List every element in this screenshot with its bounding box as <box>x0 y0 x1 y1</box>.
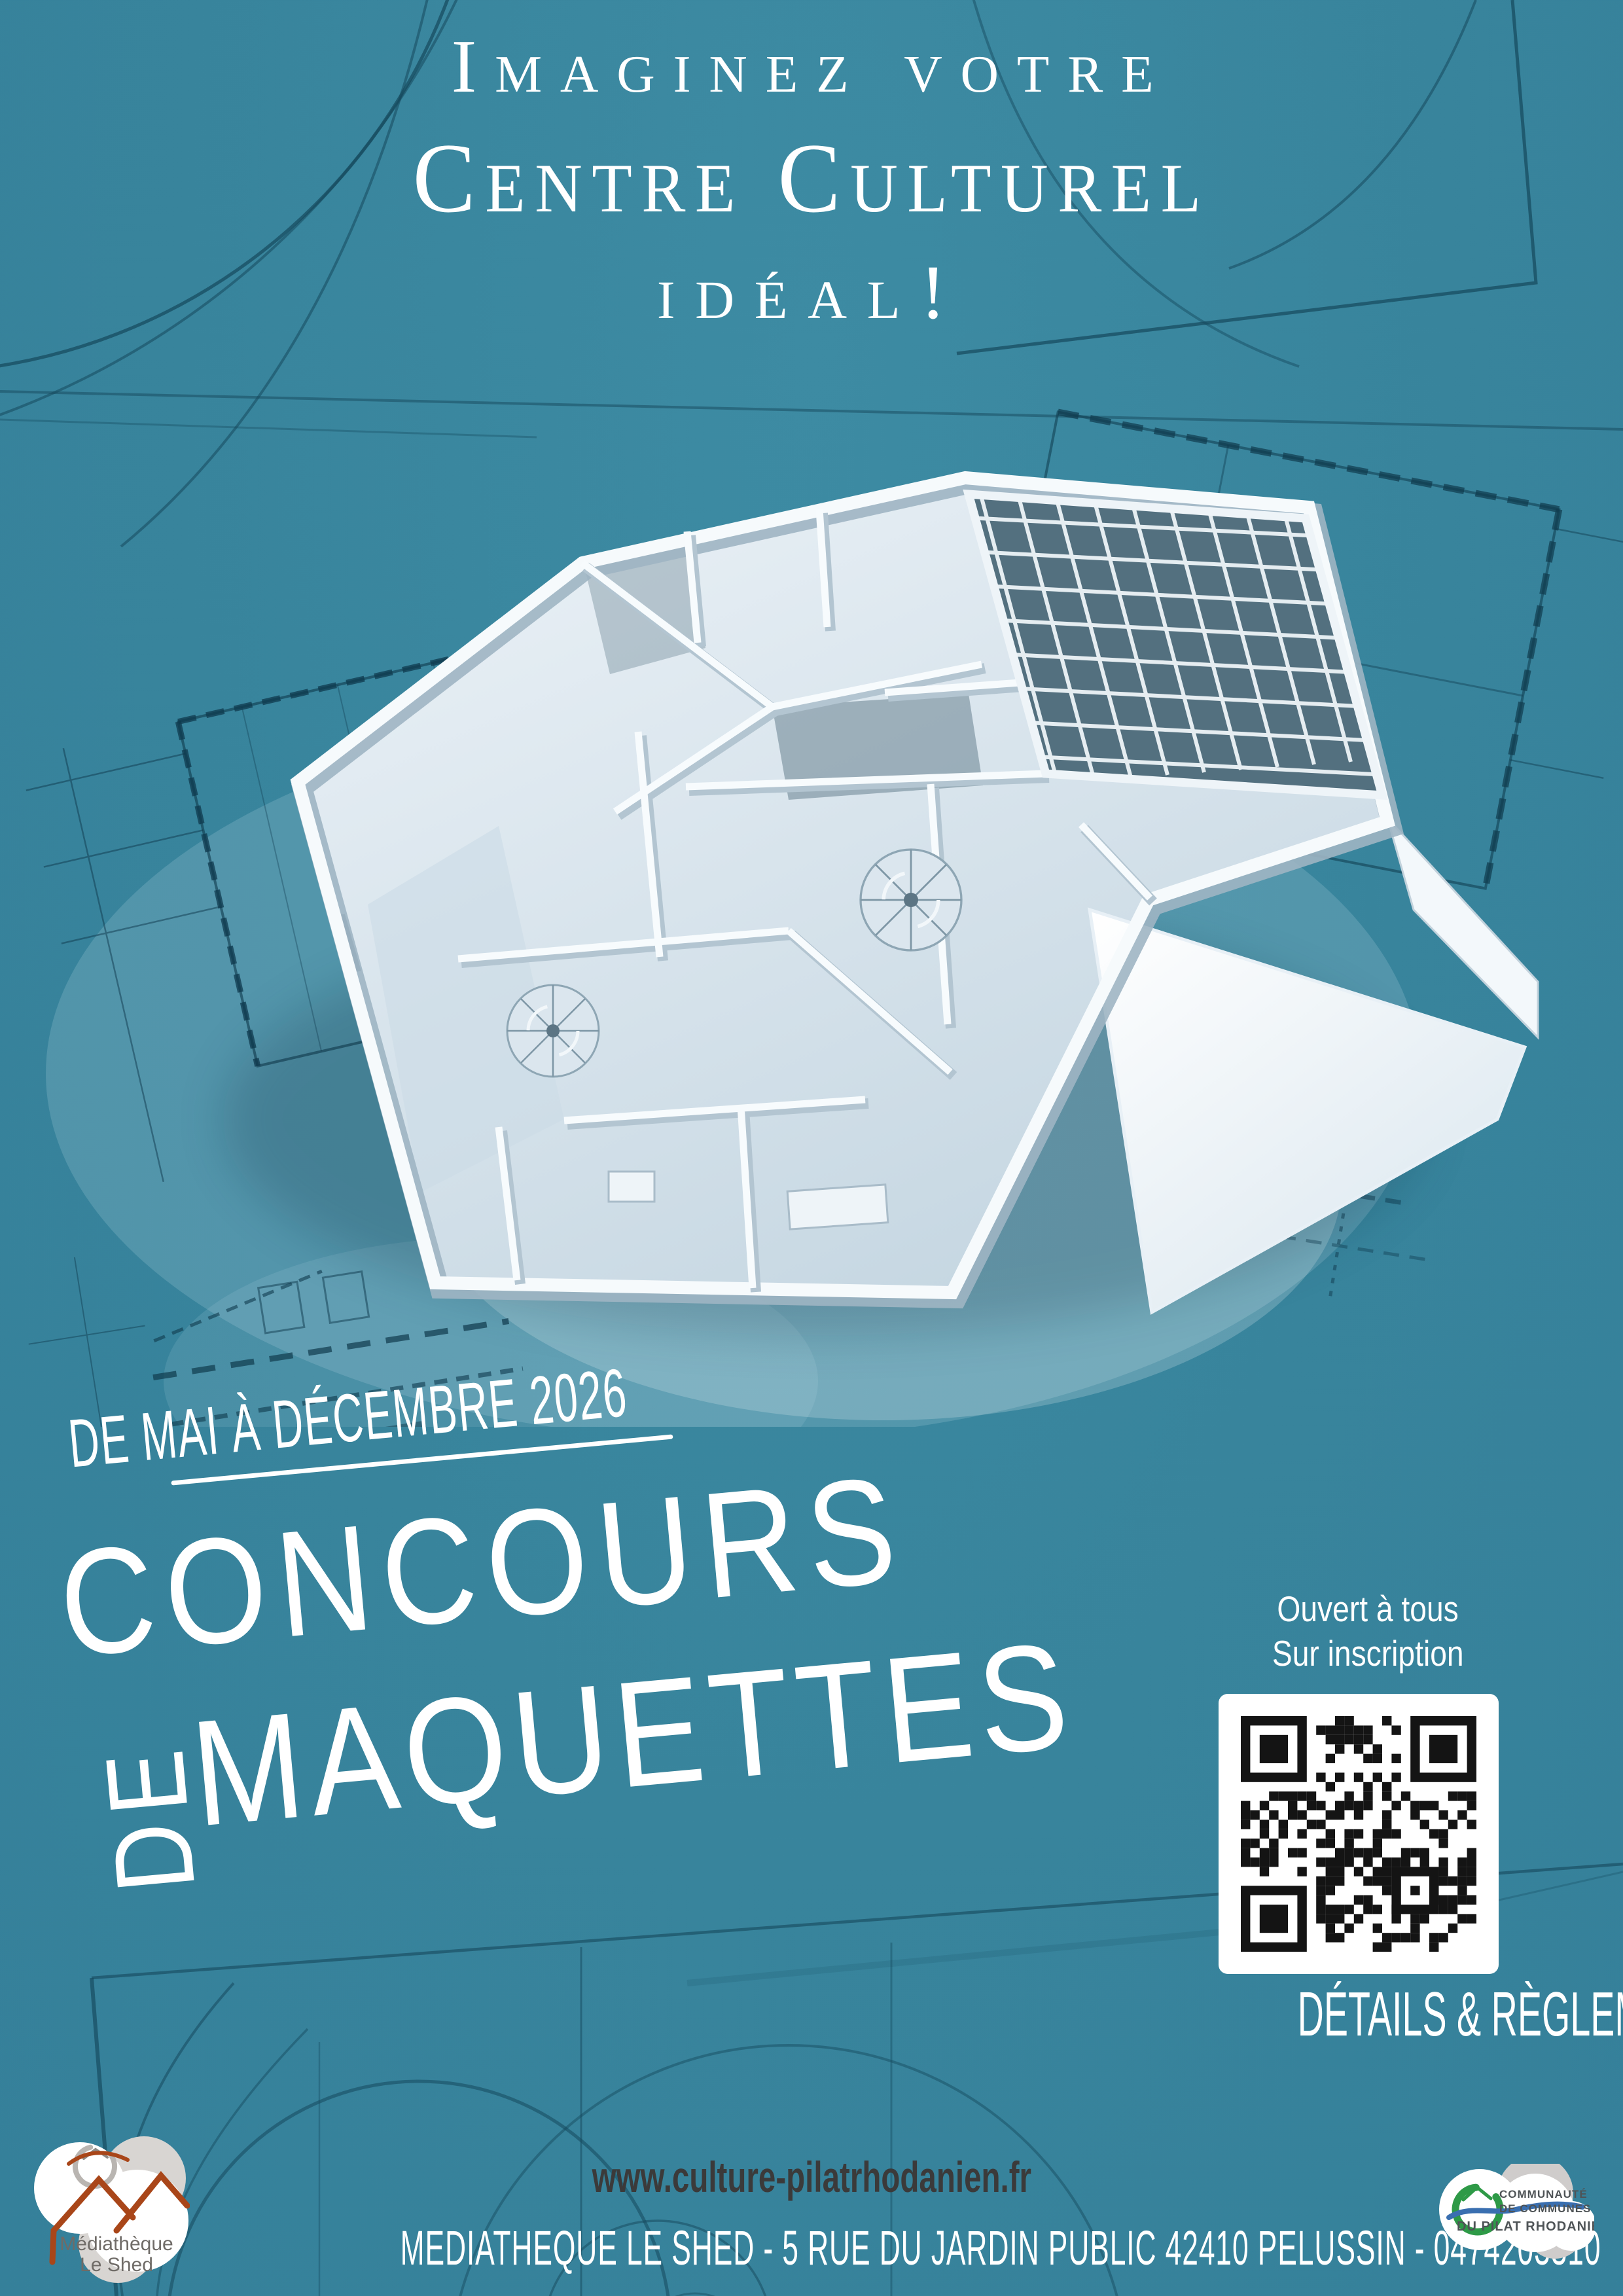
model-right-wall <box>1387 818 1538 1037</box>
signup-line-2: Sur inscription <box>1272 1631 1464 1676</box>
spiral-staircase <box>507 985 599 1077</box>
footer-website-wrap: www.culture-pilatrhodanien.fr <box>0 2152 1623 2202</box>
details-label-wrap: DÉTAILS & RÈGLEMENT <box>1145 1983 1590 2046</box>
shed-logo-line-2: Le Shed <box>80 2254 153 2276</box>
title-line-3: idéal! <box>0 254 1623 331</box>
qr-code <box>1219 1694 1499 1974</box>
qr-modules <box>1241 1716 1476 1952</box>
building-model-3d <box>223 462 1538 1335</box>
spiral-staircase <box>861 850 961 950</box>
address-text: MEDIATHEQUE LE SHED - 5 RUE DU JARDIN PU… <box>401 2220 1601 2276</box>
cc-logo-line-3: DU PILAT RHODANIEN <box>1457 2219 1594 2234</box>
cc-logo-line-1: COMMUNAUTÉ <box>1499 2188 1588 2200</box>
logo-communaute-communes: COMMUNAUTÉ DE COMMUNES DU PILAT RHODANIE… <box>1431 2164 1594 2269</box>
footer-address-wrap: MEDIATHEQUE LE SHED - 5 RUE DU JARDIN PU… <box>0 2220 1623 2276</box>
details-label: DÉTAILS & RÈGLEMENT <box>1298 1983 1623 2046</box>
title-line-1: Imaginez votre <box>0 29 1623 105</box>
architecture-model-photo <box>0 367 1623 1427</box>
website-text: www.culture-pilatrhodanien.fr <box>592 2152 1031 2202</box>
shed-logo-line-1: Médiathèque <box>60 2233 173 2255</box>
cc-logo-line-2: DE COMMUNES <box>1499 2202 1591 2215</box>
poster-title: Imaginez votre Centre Culturel idéal! <box>0 0 1623 331</box>
signup-note: Ouvert à tous Sur inscription <box>1198 1587 1538 1676</box>
title-line-2: Centre Culturel <box>41 128 1582 228</box>
poster-page: { "poster": { "background_color": "#3884… <box>0 0 1623 2296</box>
logo-mediatheque-le-shed: Médiathèque Le Shed <box>33 2132 190 2296</box>
signup-line-1: Ouvert à tous <box>1277 1587 1458 1631</box>
